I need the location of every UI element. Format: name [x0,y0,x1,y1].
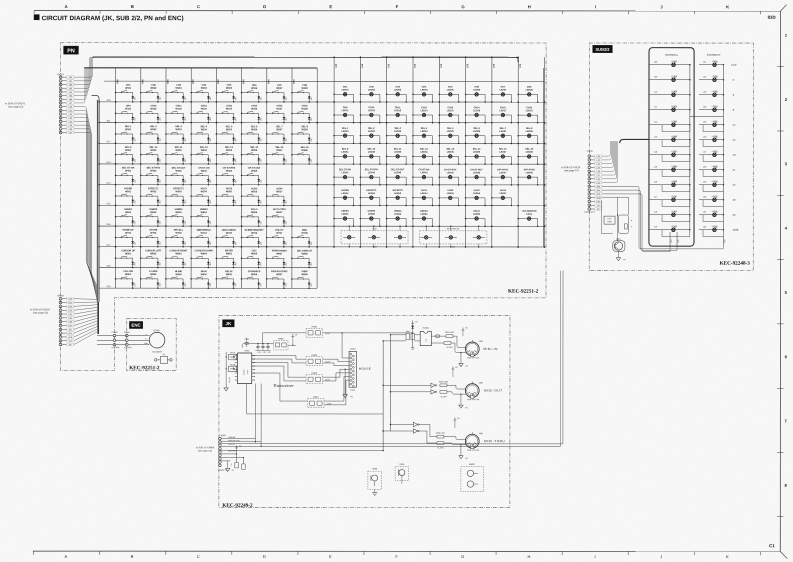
svg-text:SEL-ST-ON: SEL-ST-ON [339,169,351,171]
svg-text:W102: W102 [150,108,157,110]
svg-text:LED38: LED38 [526,152,534,154]
svg-text:Y03: Y03 [69,88,72,90]
svg-text:Q905: Q905 [372,468,378,470]
svg-text:D60: D60 [185,180,187,183]
svg-text:B: B [131,4,134,9]
svg-text:D60: D60 [311,242,313,245]
svg-text:CH4: CH4 [422,86,427,89]
svg-text:LED46: LED46 [473,171,481,174]
svg-text:CH15: CH15 [276,106,283,108]
svg-text:D60: D60 [311,159,313,162]
svg-text:KC6: KC6 [68,322,72,324]
svg-text:W505: W505 [226,191,233,193]
svg-text:LED15: LED15 [447,110,455,112]
svg-text:D60: D60 [185,221,187,224]
svg-text:83D: 83D [768,15,776,20]
svg-text:CH4: CH4 [201,84,206,87]
svg-text:SEL-4: SEL-4 [421,127,428,130]
svg-text:SEL-15: SEL-15 [275,147,284,149]
svg-text:LED04: LED04 [420,89,428,92]
svg-text:P5: P5 [465,408,467,410]
svg-text:W807: W807 [276,253,283,255]
svg-text:W706: W706 [251,233,258,235]
svg-text:LED56: LED56 [473,193,481,195]
svg-text:AUX2: AUX2 [447,189,454,192]
svg-text:L39: L39 [597,179,600,181]
svg-text:A4001: A4001 [350,347,355,350]
svg-text:USER4: USER4 [200,208,208,211]
svg-text:LED4: LED4 [526,213,533,216]
svg-text:LED62: LED62 [368,214,376,216]
svg-text:W607: W607 [276,212,283,214]
svg-text:LED03: LED03 [394,89,402,91]
svg-text:D60: D60 [260,283,262,286]
svg-text:LED45: LED45 [447,171,455,174]
svg-text:W206: W206 [251,129,258,131]
svg-text:I: I [594,554,595,559]
svg-text:D60: D60 [286,97,288,100]
svg-text:LED17: LED17 [499,110,507,112]
svg-text:SEL-7: SEL-7 [276,126,283,128]
svg-text:Y01: Y01 [69,81,72,83]
svg-text:L33: L33 [597,160,600,162]
svg-text:W805: W805 [226,253,233,255]
svg-text:W405: W405 [226,170,233,173]
svg-text:W707: W707 [276,233,283,235]
svg-text:D60: D60 [260,180,262,183]
svg-text:CURSOR DOWN: CURSOR DOWN [195,250,213,252]
svg-text:D60: D60 [260,97,262,100]
svg-text:IC901: IC901 [244,370,246,375]
svg-text:W801: W801 [125,253,132,255]
svg-text:EFF-RTN1: EFF-RTN1 [497,169,509,171]
svg-text:MIDI-IN: MIDI-IN [228,444,235,446]
svg-text:AUX2: AUX2 [226,187,233,190]
svg-text:Y02: Y02 [69,84,72,86]
svg-text:W704: W704 [201,232,208,235]
svg-text:D60: D60 [235,242,237,245]
svg-text:STORE: STORE [149,230,157,232]
svg-text:L35: L35 [597,167,600,169]
svg-text:L32: L32 [69,114,72,116]
svg-text:SEL-4: SEL-4 [200,125,207,128]
svg-text:(see page C3): (see page C3) [198,450,212,452]
svg-text:CH-ST-ON: CH-ST-ON [198,168,210,170]
svg-text:S03: S03 [724,240,726,243]
svg-text:SEL-13: SEL-13 [446,149,454,151]
svg-text:CN904: CN904 [124,332,130,334]
svg-text:SEL-10: SEL-10 [149,147,158,149]
svg-text:D60: D60 [134,200,136,203]
svg-text:AUTO-TRIG: AUTO-TRIG [273,208,286,211]
svg-text:FB904: FB904 [313,397,319,399]
svg-text:FB903: FB903 [311,373,317,375]
svg-text:D60: D60 [311,138,313,141]
svg-text:P5: P5 [350,396,352,398]
svg-text:W104: W104 [201,107,208,110]
svg-text:L34: L34 [69,121,72,123]
svg-text:KLM-8PB: KLM-8PB [112,347,120,349]
svg-text:EC901: EC901 [153,330,160,332]
svg-text:HI-MID: HI-MID [175,271,183,273]
svg-text:LED47: LED47 [499,171,507,174]
svg-text:SCENE MEMORY: SCENE MEMORY [245,230,265,232]
svg-text:Y07: Y07 [69,103,72,105]
svg-text:SOLO: SOLO [251,209,258,211]
svg-text:CH-ST-RTN: CH-ST-RTN [223,168,236,170]
svg-text:LED28: LED28 [526,131,534,133]
svg-text:SUB2/2: SUB2/2 [596,47,611,52]
svg-text:Transceiver: Transceiver [273,383,294,388]
svg-text:CH9: CH9 [126,105,131,107]
svg-text:W106: W106 [251,109,258,111]
svg-text:FADER: FADER [124,187,132,190]
svg-text:AUX1: AUX1 [421,189,428,192]
svg-text:W105: W105 [226,109,233,111]
svg-text:LED52: LED52 [368,193,376,195]
svg-text:PAN-ROUTING: PAN-ROUTING [271,270,287,273]
svg-text:R908 L905: R908 L905 [436,433,445,435]
svg-text:KR0: KR0 [193,79,195,84]
svg-text:CIRCUIT DIAGRAM (JK, SUB 2/2,: CIRCUIT DIAGRAM (JK, SUB 2/2, PN and ENC… [42,15,184,22]
svg-text:RY.CTS: RY.CTS [229,376,231,383]
svg-text:KR0: KR0 [294,79,296,84]
svg-text:CH11: CH11 [395,107,401,109]
svg-text:CH16: CH16 [526,107,533,109]
svg-text:D60: D60 [235,180,237,183]
svg-text:W406: W406 [251,170,258,173]
svg-text:X901: X901 [242,344,244,348]
svg-text:LED26: LED26 [473,131,481,133]
svg-text:S04: S04 [597,190,600,192]
svg-text:D60: D60 [160,221,162,224]
svg-text:to SUB-1/2-CN210: to SUB-1/2-CN210 [561,166,581,169]
svg-text:LED63: LED63 [394,214,402,216]
svg-text:D60: D60 [185,283,187,286]
svg-text:D60: D60 [134,283,136,286]
svg-text:D60: D60 [160,138,162,141]
svg-text:W002: W002 [150,88,157,90]
svg-text:CLIP: CLIP [731,64,737,67]
svg-text:VIEW: VIEW [302,271,309,273]
svg-text:CURSOR UP: CURSOR UP [121,250,135,252]
svg-text:LO-MID: LO-MID [149,271,158,273]
svg-text:SEL-ST-RTN: SEL-ST-RTN [365,169,379,171]
svg-text:W103: W103 [176,108,183,110]
svg-text:CH2: CH2 [369,86,374,88]
svg-text:W004: W004 [201,87,208,90]
svg-text:W907: W907 [276,274,283,276]
svg-text:S01: S01 [671,240,673,243]
svg-text:D60: D60 [235,97,237,100]
svg-text:D60: D60 [210,180,212,183]
svg-text:D60: D60 [185,97,187,100]
svg-text:CH2: CH2 [151,85,156,87]
svg-text:D60: D60 [185,262,187,265]
svg-text:SEL-9: SEL-9 [125,147,132,149]
svg-text:SEL-13: SEL-13 [225,147,234,149]
svg-text:J: J [660,554,662,559]
svg-text:W308: W308 [302,150,309,152]
svg-text:SEL-14: SEL-14 [473,148,481,151]
svg-text:W306: W306 [251,150,258,152]
svg-text:SEL-3: SEL-3 [175,126,182,128]
svg-text:AUX3: AUX3 [251,187,258,190]
svg-text:(see page C2): (see page C2) [8,105,23,108]
svg-text:LED33: LED33 [394,152,402,154]
svg-text:W902: W902 [150,274,157,276]
svg-text:W208: W208 [302,129,309,131]
svg-text:SEL-2: SEL-2 [368,128,375,130]
svg-text:D60: D60 [260,159,262,162]
svg-text:A4002: A4002 [469,463,476,466]
svg-text:CH7: CH7 [277,85,282,87]
svg-text:D60: D60 [159,283,161,286]
svg-text:W806: W806 [251,253,258,255]
svg-text:SEL-11: SEL-11 [394,149,402,151]
svg-text:CH15: CH15 [500,107,507,109]
svg-text:D60: D60 [235,159,237,162]
svg-text:W503: W503 [175,191,182,193]
svg-text:+CC-REMOTE: +CC-REMOTE [522,211,537,213]
svg-text:JA702: JA702 [230,363,235,366]
svg-text:W007: W007 [276,88,283,90]
svg-text:LED05: LED05 [447,90,455,92]
svg-text:DELAY: DELAY [225,270,233,273]
svg-text:S09: S09 [597,186,600,188]
svg-text:CH13: CH13 [226,106,233,108]
svg-text:D5: D5 [455,367,457,369]
svg-text:W603: W603 [175,212,182,214]
svg-text:KR0: KR0 [142,79,144,84]
svg-text:LED08: LED08 [526,90,534,92]
svg-text:JK: JK [225,321,232,326]
svg-text:C1: C1 [769,543,775,548]
svg-text:D60: D60 [134,262,136,265]
svg-text:FB905: FB905 [278,338,284,340]
svg-text:UNDO-REDO: UNDO-REDO [222,230,237,232]
svg-text:CH9: CH9 [343,107,348,109]
svg-text:-40dB: -40dB [732,229,739,232]
svg-text:KEC-92248-3: KEC-92248-3 [720,261,751,267]
svg-text:W506: W506 [251,191,258,193]
svg-text:LED16: LED16 [473,110,481,112]
svg-text:LED24: LED24 [420,130,428,133]
svg-text:Y06: Y06 [69,99,72,101]
svg-text:Q301: Q301 [616,239,621,241]
svg-text:D60: D60 [160,118,162,121]
svg-text:D60: D60 [134,138,136,141]
svg-text:MONITORING: MONITORING [272,250,287,252]
svg-text:KC2: KC2 [68,306,72,308]
svg-text:EFFECT1: EFFECT1 [148,188,159,190]
svg-text:D60: D60 [210,200,212,203]
svg-text:W504: W504 [201,190,208,193]
svg-text:W501: W501 [125,191,132,193]
svg-text:UTILITY: UTILITY [275,230,284,232]
svg-text:LED02: LED02 [368,89,376,91]
svg-text:HOME-UP: HOME-UP [123,230,134,232]
svg-text:CN903: CN903 [112,332,118,334]
svg-text:USER4: USER4 [420,210,428,213]
svg-text:D60: D60 [185,138,187,141]
svg-text:L38: L38 [597,171,600,173]
svg-text:W708: W708 [301,233,308,235]
svg-text:FB901: FB901 [311,326,317,328]
svg-text:LED34: LED34 [420,151,428,154]
svg-text:C90: C90 [258,352,261,354]
svg-text:H: H [528,554,531,559]
svg-text:LED41: LED41 [342,171,350,174]
svg-text:DYNAMICS: DYNAMICS [248,270,261,273]
svg-text:W207: W207 [276,129,283,131]
svg-text:SEL-10: SEL-10 [368,149,376,151]
svg-text:W901: W901 [125,274,132,276]
svg-text:P5: P5 [465,458,467,460]
svg-text:CH1: CH1 [126,85,131,87]
svg-text:EFFECT1: EFFECT1 [366,190,377,192]
svg-text:SEL-12: SEL-12 [420,149,428,151]
svg-text:D60: D60 [134,159,136,162]
svg-text:(see page C4): (see page C4) [564,170,579,172]
svg-text:LED22: LED22 [368,131,376,133]
svg-text:USER1: USER1 [341,211,349,213]
svg-text:OSC: OSC [252,250,257,252]
svg-text:D60: D60 [235,138,237,141]
svg-text:D60: D60 [210,97,212,100]
svg-text:CN210-GTS: CN210-GTS [584,212,595,214]
svg-text:LED53: LED53 [394,193,402,195]
svg-text:CH6: CH6 [474,87,479,89]
svg-text:D60: D60 [311,283,313,286]
svg-text:D60: D60 [235,200,237,203]
svg-text:D60: D60 [260,118,262,121]
svg-text:LED57: LED57 [499,193,507,195]
svg-text:D60: D60 [160,159,162,162]
svg-text:D60: D60 [311,118,313,121]
svg-text:W703: W703 [175,233,182,235]
svg-text:D: D [263,4,266,9]
svg-text:D60: D60 [134,242,136,245]
svg-text:U906: U906 [372,246,377,248]
svg-text:W802: W802 [150,253,157,255]
svg-text:D60: D60 [134,180,136,183]
svg-text:D60: D60 [160,97,162,100]
svg-text:USER2: USER2 [149,209,157,211]
svg-text:D60: D60 [260,221,262,224]
svg-text:CN04: CN04 [350,390,355,392]
svg-text:W601: W601 [125,212,132,214]
svg-text:LED61: LED61 [342,214,350,216]
svg-text:SEL-16: SEL-16 [301,147,310,149]
svg-text:LED37: LED37 [499,152,507,154]
svg-text:SEL-8: SEL-8 [526,128,533,130]
svg-text:CH8: CH8 [527,87,532,89]
svg-text:MIDI-IN: MIDI-IN [483,347,498,351]
svg-text:W404: W404 [201,170,208,173]
svg-text:W507: W507 [276,191,283,193]
svg-text:SEL-ST-ON: SEL-ST-ON [122,168,135,170]
svg-text:LED18: LED18 [526,110,534,112]
svg-text:D60: D60 [185,118,187,121]
svg-text:SEL-12: SEL-12 [200,147,209,149]
svg-text:RECALL: RECALL [174,229,184,232]
svg-text:JA701: JA701 [230,351,235,354]
svg-text:MEETERING: MEETERING [197,230,211,232]
svg-text:C90: C90 [263,352,266,354]
svg-text:SEL-15: SEL-15 [499,149,507,151]
svg-text:W204: W204 [201,128,208,131]
svg-text:CH-ST-RTN: CH-ST-RTN [444,169,456,171]
svg-text:MIDI 5PIN DIN: MIDI 5PIN DIN [467,358,480,360]
svg-text:MIDI: MIDI [302,230,307,232]
svg-text:LED23: LED23 [394,131,402,133]
svg-text:L31: L31 [69,110,72,112]
svg-text:LED07: LED07 [499,90,507,92]
svg-text:KEC-92251-2: KEC-92251-2 [508,289,539,295]
svg-text:E: E [329,554,332,559]
svg-text:LED55: LED55 [447,193,455,195]
svg-text:R906 L903: R906 L903 [439,381,448,383]
svg-text:USER3: USER3 [175,209,183,211]
svg-text:SEL-DISPLAY: SEL-DISPLAY [297,249,313,252]
svg-text:(see page C2): (see page C2) [33,312,48,315]
svg-text:C90: C90 [268,352,271,354]
svg-text:MOUSE: MOUSE [359,367,371,371]
svg-text:SL2004: SL2004 [446,347,452,349]
svg-text:F: F [396,4,399,9]
svg-text:CN202: CN202 [57,295,65,297]
svg-text:W904: W904 [201,273,208,276]
svg-text:L36: L36 [69,129,72,131]
svg-text:D5: D5 [457,418,459,420]
svg-text:D60: D60 [160,180,162,183]
svg-text:PN: PN [67,48,75,54]
svg-text:SEL-11: SEL-11 [175,147,183,149]
svg-text:W701: W701 [125,233,132,235]
svg-text:STEREO-R: STEREO-R [707,53,721,57]
svg-text:D60: D60 [185,242,187,245]
svg-text:D5: D5 [415,321,417,323]
svg-text:W307: W307 [276,150,283,152]
svg-text:CH3: CH3 [176,85,181,87]
svg-text:LED44: LED44 [420,171,428,174]
svg-text:TC35: TC35 [247,370,249,374]
svg-text:USER2: USER2 [368,211,376,213]
svg-text:ENCODER: ENCODER [152,351,162,353]
svg-text:CH10: CH10 [150,105,157,107]
svg-text:C: C [197,4,200,9]
svg-text:W604: W604 [201,211,208,214]
svg-text:W401: W401 [125,170,132,173]
svg-text:D60: D60 [210,283,212,286]
svg-text:SL2004: SL2004 [440,396,446,398]
svg-text:KC7: KC7 [68,325,72,327]
svg-text:D60: D60 [134,221,136,224]
svg-text:CH6: CH6 [252,85,257,87]
svg-text:D60: D60 [260,242,262,245]
svg-text:CURSOR RIGHT: CURSOR RIGHT [170,250,189,252]
svg-text:RA30: RA30 [607,220,612,223]
svg-text:KC4: KC4 [68,314,72,316]
svg-text:A901: A901 [479,340,483,343]
svg-text:D60: D60 [286,118,288,121]
svg-text:SEL-ST-RTN: SEL-ST-RTN [146,168,160,170]
svg-text:CN210: CN210 [587,151,594,153]
svg-text:D60: D60 [311,263,313,266]
svg-text:P5: P5 [465,366,467,368]
svg-text:IC28: IC28 [608,218,612,220]
